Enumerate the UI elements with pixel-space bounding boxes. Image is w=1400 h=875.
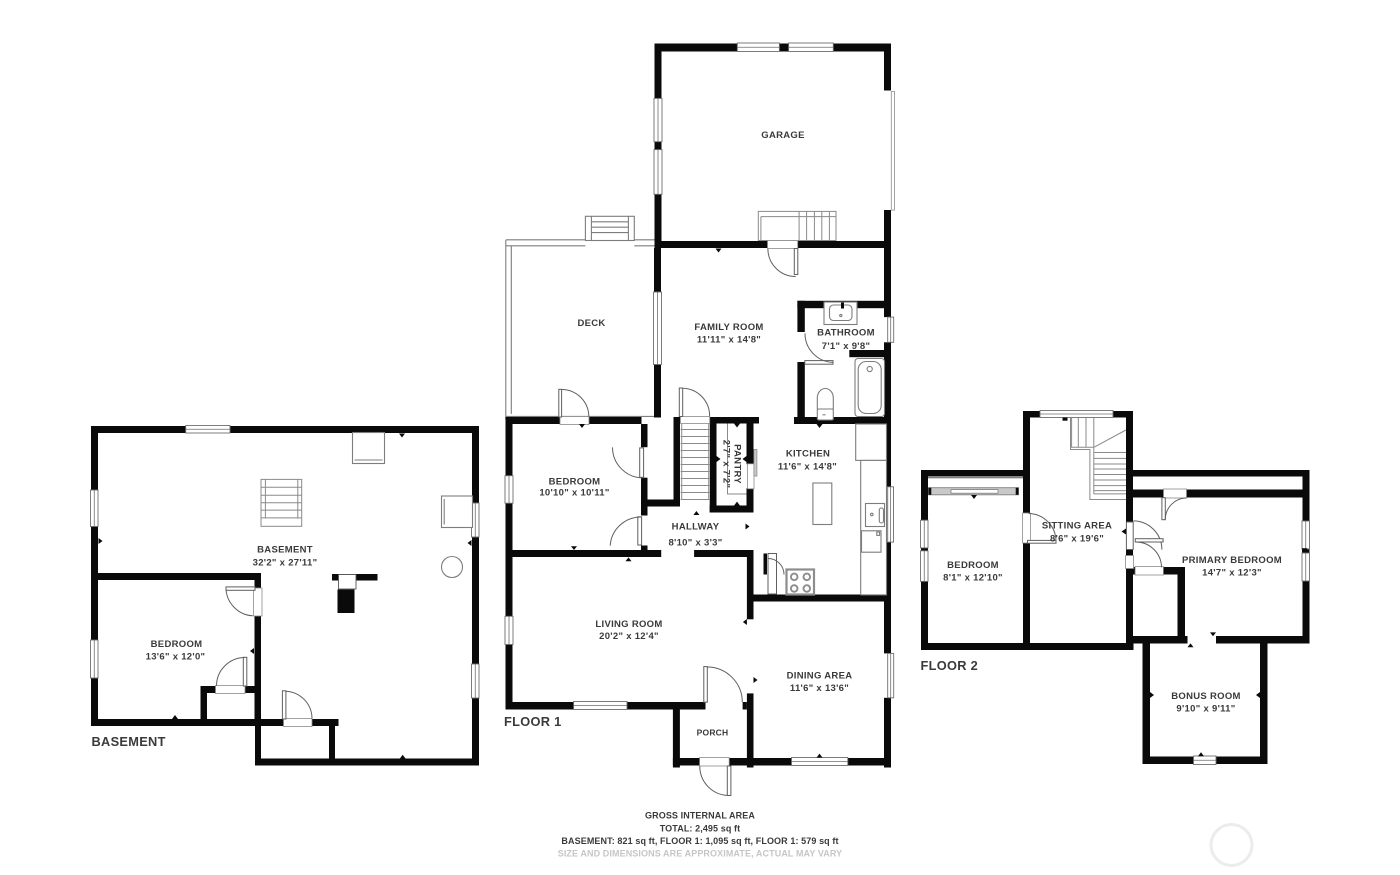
svg-text:BEDROOM: BEDROOM bbox=[549, 477, 601, 488]
svg-text:13'6" x 12'0": 13'6" x 12'0" bbox=[146, 652, 206, 663]
svg-text:BONUS ROOM: BONUS ROOM bbox=[1171, 691, 1241, 702]
svg-text:BEDROOM: BEDROOM bbox=[947, 560, 999, 571]
svg-text:LIVING ROOM: LIVING ROOM bbox=[595, 619, 662, 630]
svg-text:14'7" x 12'3": 14'7" x 12'3" bbox=[1202, 568, 1262, 579]
svg-text:SIZE AND DIMENSIONS ARE APPROX: SIZE AND DIMENSIONS ARE APPROXIMATE, ACT… bbox=[558, 849, 843, 859]
svg-text:BATHROOM: BATHROOM bbox=[817, 328, 875, 339]
svg-text:SITTING AREA: SITTING AREA bbox=[1042, 521, 1112, 532]
svg-text:BASEMENT: BASEMENT bbox=[92, 734, 166, 749]
svg-text:20'2" x 12'4": 20'2" x 12'4" bbox=[599, 631, 659, 642]
svg-text:DINING AREA: DINING AREA bbox=[787, 671, 853, 682]
svg-text:KITCHEN: KITCHEN bbox=[786, 449, 830, 460]
svg-text:9'10" x 9'11": 9'10" x 9'11" bbox=[1176, 704, 1235, 715]
svg-text:11'6" x 14'8": 11'6" x 14'8" bbox=[778, 462, 837, 473]
svg-text:GARAGE: GARAGE bbox=[761, 130, 805, 141]
svg-text:8'10" x 3'3": 8'10" x 3'3" bbox=[668, 538, 722, 549]
svg-text:FLOOR 1: FLOOR 1 bbox=[504, 714, 562, 729]
svg-text:8'1" x 12'10": 8'1" x 12'10" bbox=[943, 573, 1003, 584]
svg-text:11'6" x 13'6": 11'6" x 13'6" bbox=[790, 683, 849, 694]
svg-text:2'7" x 7'2": 2'7" x 7'2" bbox=[720, 440, 731, 489]
svg-text:10'10" x 10'11": 10'10" x 10'11" bbox=[539, 488, 609, 499]
svg-text:PANTRY: PANTRY bbox=[732, 444, 743, 484]
svg-text:FLOOR 2: FLOOR 2 bbox=[921, 658, 979, 673]
svg-text:FAMILY ROOM: FAMILY ROOM bbox=[694, 322, 763, 333]
svg-text:TOTAL: 2,495 sq ft: TOTAL: 2,495 sq ft bbox=[660, 824, 740, 834]
svg-text:HALLWAY: HALLWAY bbox=[672, 522, 720, 533]
svg-text:BASEMENT: 821 sq ft, FLOOR 1:: BASEMENT: 821 sq ft, FLOOR 1: 1,095 sq f… bbox=[561, 836, 838, 846]
svg-text:7'1" x 9'8": 7'1" x 9'8" bbox=[822, 341, 871, 352]
svg-text:BEDROOM: BEDROOM bbox=[151, 639, 203, 650]
svg-text:32'2" x 27'11": 32'2" x 27'11" bbox=[253, 558, 318, 569]
svg-text:PORCH: PORCH bbox=[697, 728, 729, 738]
svg-text:8'6" x 19'6": 8'6" x 19'6" bbox=[1050, 534, 1104, 545]
svg-text:GROSS INTERNAL AREA: GROSS INTERNAL AREA bbox=[645, 811, 755, 821]
svg-text:PRIMARY BEDROOM: PRIMARY BEDROOM bbox=[1182, 555, 1282, 566]
svg-text:BASEMENT: BASEMENT bbox=[257, 545, 313, 556]
svg-text:11'11" x 14'8": 11'11" x 14'8" bbox=[697, 335, 761, 346]
svg-text:DECK: DECK bbox=[577, 318, 605, 329]
